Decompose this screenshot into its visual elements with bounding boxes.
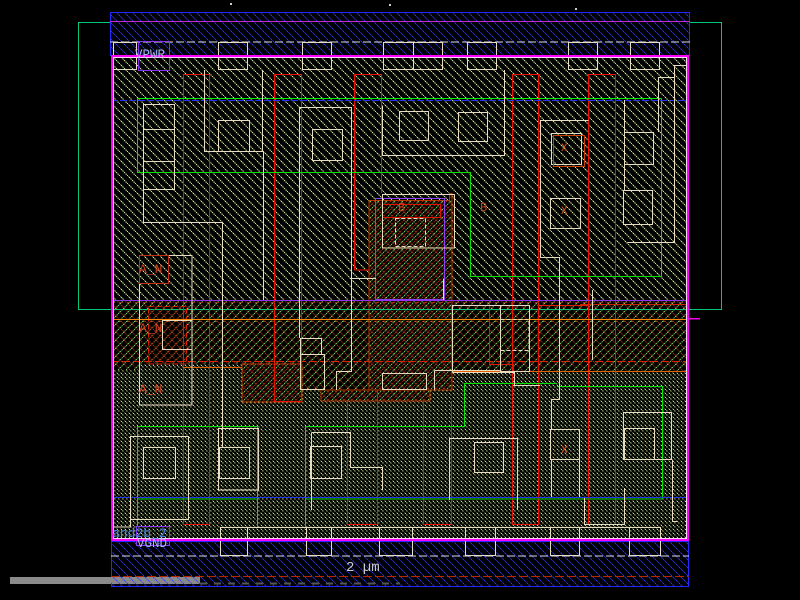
svg-text:B: B [480, 201, 487, 215]
svg-text:A_N: A_N [139, 262, 162, 277]
svg-text:A_N: A_N [139, 382, 162, 397]
svg-text:2 µm: 2 µm [346, 560, 380, 576]
svg-text:B: B [398, 201, 405, 215]
svg-text:A_N: A_N [139, 321, 162, 336]
svg-text:X: X [561, 445, 568, 457]
svg-text:X: X [561, 206, 568, 218]
svg-text:and2b_2: and2b_2 [112, 526, 167, 541]
svg-text:VPWR: VPWR [135, 48, 166, 62]
svg-text:X: X [561, 143, 568, 155]
